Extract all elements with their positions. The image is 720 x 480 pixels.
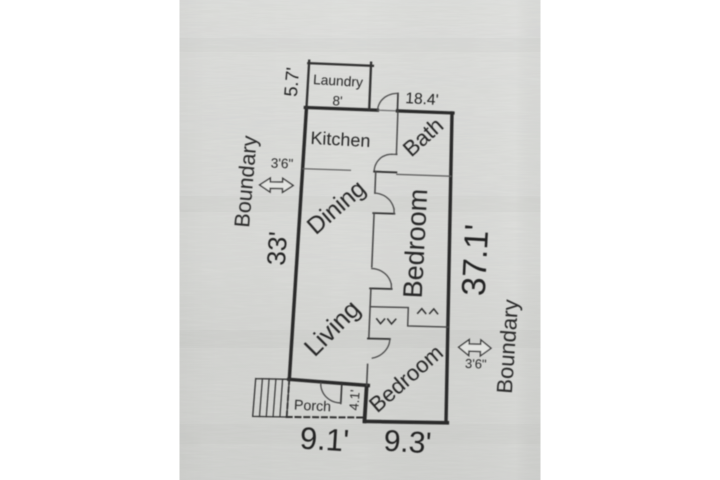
svg-text:8': 8' (332, 93, 343, 109)
svg-text:9.1': 9.1' (299, 421, 350, 459)
svg-text:Kitchen: Kitchen (310, 128, 371, 151)
svg-text:37.1': 37.1' (456, 223, 497, 296)
svg-text:Porch: Porch (294, 398, 332, 416)
svg-text:9.3': 9.3' (383, 425, 432, 461)
svg-text:18.4': 18.4' (405, 90, 439, 109)
svg-text:3'6": 3'6" (270, 156, 293, 172)
svg-text:33': 33' (261, 231, 293, 267)
svg-text:Bedroom: Bedroom (398, 188, 434, 299)
svg-text:Laundry: Laundry (313, 72, 364, 90)
svg-text:4.1': 4.1' (346, 389, 362, 411)
svg-text:5.7': 5.7' (280, 67, 303, 98)
svg-text:3'6": 3'6" (465, 356, 487, 372)
